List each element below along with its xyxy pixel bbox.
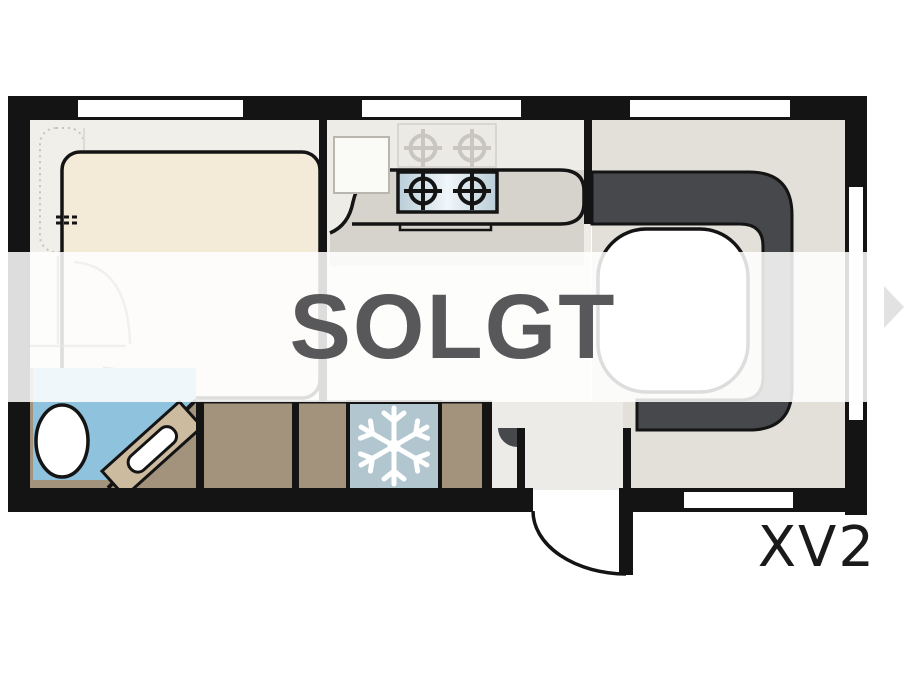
cabinet-end-divider <box>482 402 492 490</box>
sold-banner: SOLGT <box>0 252 906 402</box>
window-bottom <box>684 492 793 508</box>
cabinet-divider <box>292 402 299 490</box>
model-label: XV2 <box>758 520 876 576</box>
toilet <box>36 405 88 477</box>
window-top-1 <box>78 100 243 117</box>
entry-door-swing-arc <box>533 511 626 574</box>
window-top-2 <box>362 100 521 117</box>
wardrobe-row <box>196 402 492 490</box>
next-arrow-icon[interactable] <box>884 286 904 328</box>
sink <box>334 137 389 193</box>
caravan-listing-image: { "overlay": { "sold_label": "SOLGT", "t… <box>0 0 906 680</box>
entry-door-leaf <box>619 488 633 575</box>
window-top-3 <box>630 100 790 117</box>
sold-label: SOLGT <box>290 281 617 373</box>
